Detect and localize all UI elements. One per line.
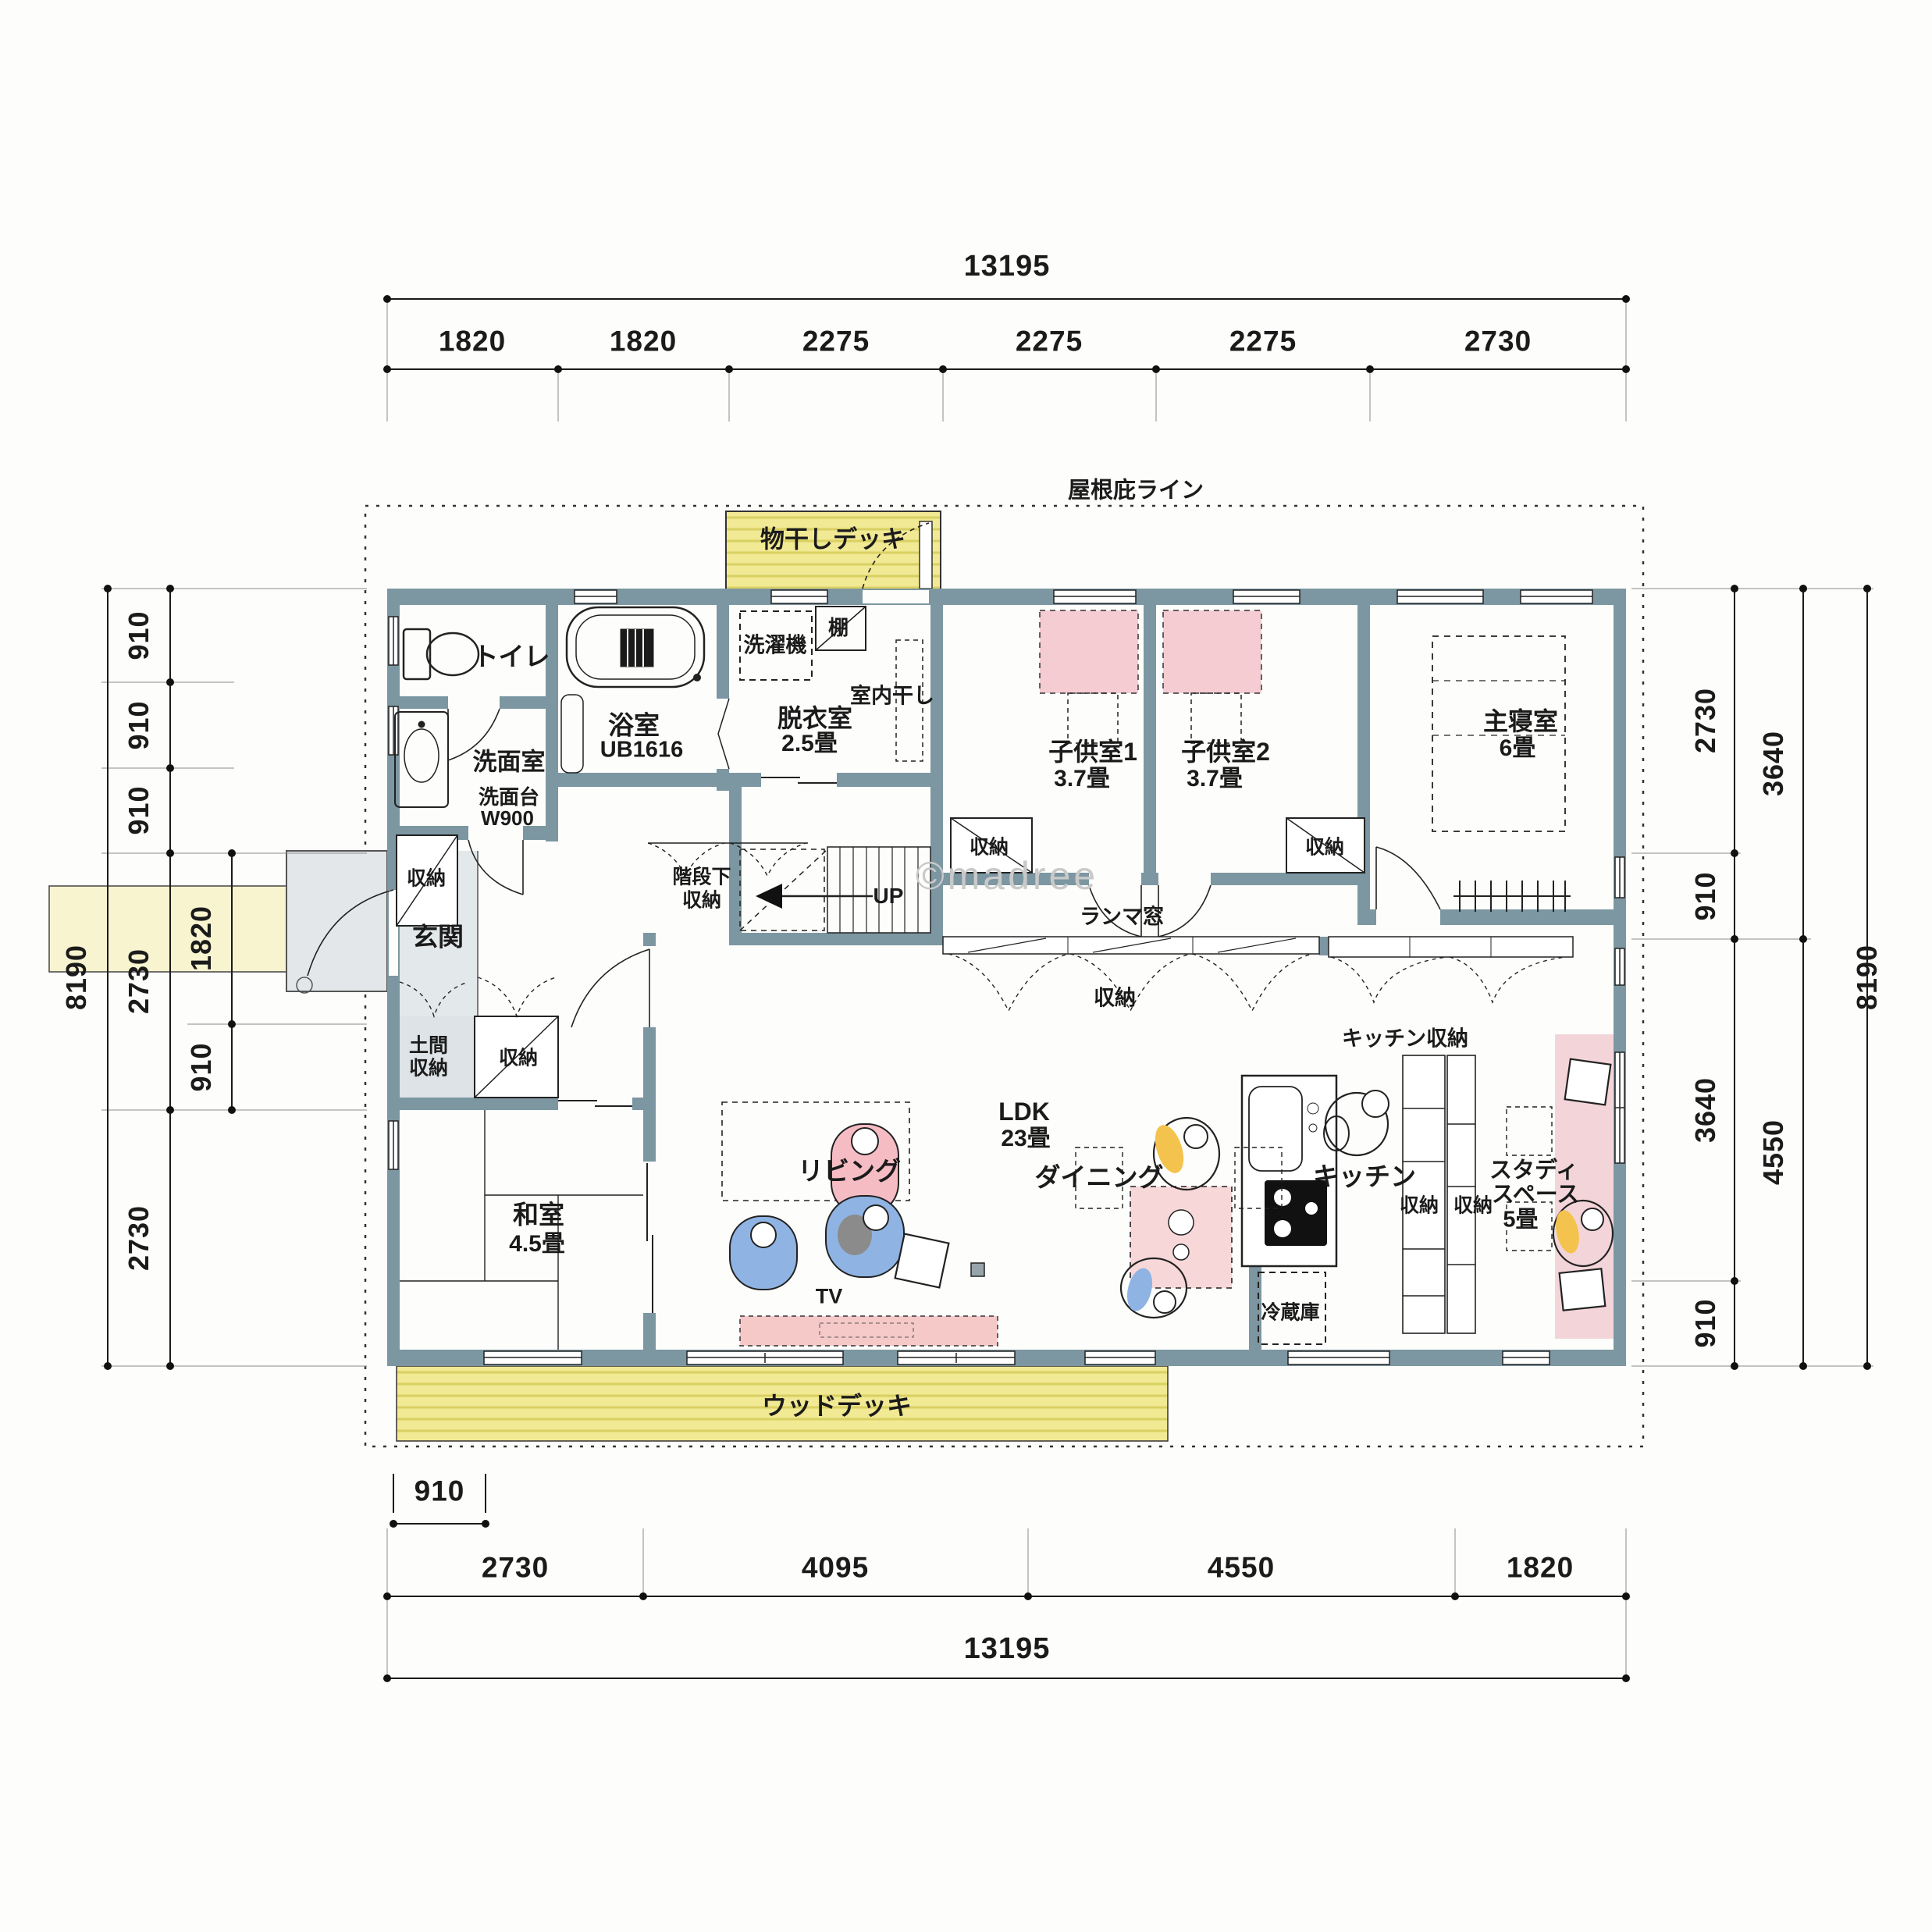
label-room-ldk: LDK	[998, 1099, 1050, 1124]
label-note-tv: TV	[816, 1286, 843, 1308]
label-note-fridge: 冷蔵庫	[1261, 1304, 1319, 1323]
label-note-closet-kid2: 収納	[1305, 838, 1344, 858]
label-room-dining: ダイニング	[1035, 1165, 1164, 1190]
label-room-study-size: 5畳	[1503, 1209, 1538, 1232]
label-top-2730: 2730	[1464, 327, 1532, 356]
label-room-bath-ub: UB1616	[600, 739, 683, 762]
label-note-roofline: 屋根庇ライン	[1068, 480, 1204, 503]
label-bot-2730: 2730	[482, 1553, 549, 1582]
label-right-8190: 8190	[1853, 945, 1881, 1010]
floor-plan-page: ©madree 13195182018202275227522752730910…	[0, 0, 1932, 1932]
label-note-closet-ldk: 収納	[1094, 988, 1136, 1009]
label-note-stair-1: 階段下	[672, 868, 731, 888]
label-left-2730-a: 2730	[125, 948, 153, 1014]
label-room-kitchen: キッチン	[1313, 1164, 1416, 1190]
label-note-closet-kid1: 収納	[970, 838, 1009, 858]
label-room-dress: 脱衣室	[777, 706, 852, 731]
label-bot-4095: 4095	[802, 1553, 869, 1582]
label-note-laundry: 洗濯機	[744, 635, 807, 656]
label-note-stair-2: 収納	[682, 891, 721, 911]
label-right-4550: 4550	[1759, 1119, 1788, 1185]
label-top-total-13195: 13195	[964, 251, 1051, 281]
label-left-2730-b: 2730	[125, 1205, 153, 1271]
label-right-3640-b: 3640	[1759, 731, 1788, 796]
watermark: ©madree	[916, 856, 1098, 895]
label-note-kitchen-storage: キッチン収納	[1342, 1029, 1468, 1050]
label-top-1820-a: 1820	[439, 327, 506, 356]
label-room-study-1: スタディ	[1489, 1160, 1578, 1183]
label-room-washitsu-size: 4.5畳	[509, 1233, 565, 1256]
label-room-master: 主寝室	[1483, 709, 1558, 734]
label-note-doma-1: 土間	[409, 1037, 448, 1056]
label-room-kid1: 子供室1	[1048, 739, 1137, 764]
label-top-2275-b: 2275	[1016, 327, 1083, 356]
label-note-ranma: ランマ窓	[1080, 907, 1164, 928]
label-room-master-size: 6畳	[1500, 737, 1536, 760]
label-room-kid1-size: 3.7畳	[1054, 767, 1110, 791]
label-note-doma-2: 収納	[409, 1059, 448, 1079]
label-left-910-a: 910	[125, 610, 153, 660]
label-bot-4550: 4550	[1208, 1553, 1275, 1582]
label-room-toilet: トイレ	[473, 644, 550, 670]
label-top-2275-c: 2275	[1229, 327, 1297, 356]
label-room-wash: 洗面室	[473, 750, 546, 774]
label-room-kid2-size: 3.7畳	[1187, 767, 1243, 791]
label-left-1820: 1820	[187, 906, 215, 971]
label-left-910-d: 910	[187, 1042, 215, 1091]
label-note-closet-genkan: 収納	[499, 1049, 538, 1069]
label-bot-1820: 1820	[1507, 1553, 1574, 1582]
label-left-910-c: 910	[125, 785, 153, 834]
label-room-dress-size: 2.5畳	[781, 732, 838, 756]
label-note-indoor-dry: 室内干し	[850, 686, 934, 707]
label-left-910-b: 910	[125, 700, 153, 749]
label-room-washitsu: 和室	[513, 1202, 564, 1228]
label-right-3640-a: 3640	[1692, 1077, 1720, 1143]
label-note-monohoshi-deck: 物干しデッキ	[760, 528, 906, 552]
label-room-living: リビング	[798, 1158, 901, 1184]
label-left-8190: 8190	[62, 945, 91, 1010]
label-right-910-b: 910	[1692, 1298, 1720, 1347]
label-right-910-a: 910	[1692, 871, 1720, 920]
label-note-wood-deck: ウッドデッキ	[762, 1393, 912, 1418]
label-note-closet-wash: 収納	[407, 870, 446, 889]
label-bot-total-13195: 13195	[964, 1634, 1051, 1663]
label-note-shelf: 棚	[828, 617, 849, 638]
label-room-wash-w900: W900	[481, 808, 534, 828]
label-top-2275-a: 2275	[802, 327, 870, 356]
label-top-1820-b: 1820	[610, 327, 677, 356]
label-note-storage-b: 収納	[1453, 1197, 1493, 1216]
label-room-study-2: スペース	[1492, 1184, 1580, 1207]
label-room-ldk-size: 23畳	[1001, 1127, 1050, 1151]
labels-layer: ©madree 13195182018202275227522752730910…	[0, 0, 1932, 1932]
label-room-genkan: 玄関	[412, 924, 464, 950]
label-right-2730: 2730	[1692, 688, 1720, 753]
label-note-storage-a: 収納	[1400, 1197, 1439, 1216]
label-note-up: UP	[873, 885, 904, 907]
label-room-wash-vanity: 洗面台	[479, 787, 539, 807]
label-room-bath: 浴室	[608, 713, 660, 738]
label-room-kid2: 子供室2	[1181, 739, 1270, 764]
label-bot-910: 910	[415, 1477, 465, 1506]
